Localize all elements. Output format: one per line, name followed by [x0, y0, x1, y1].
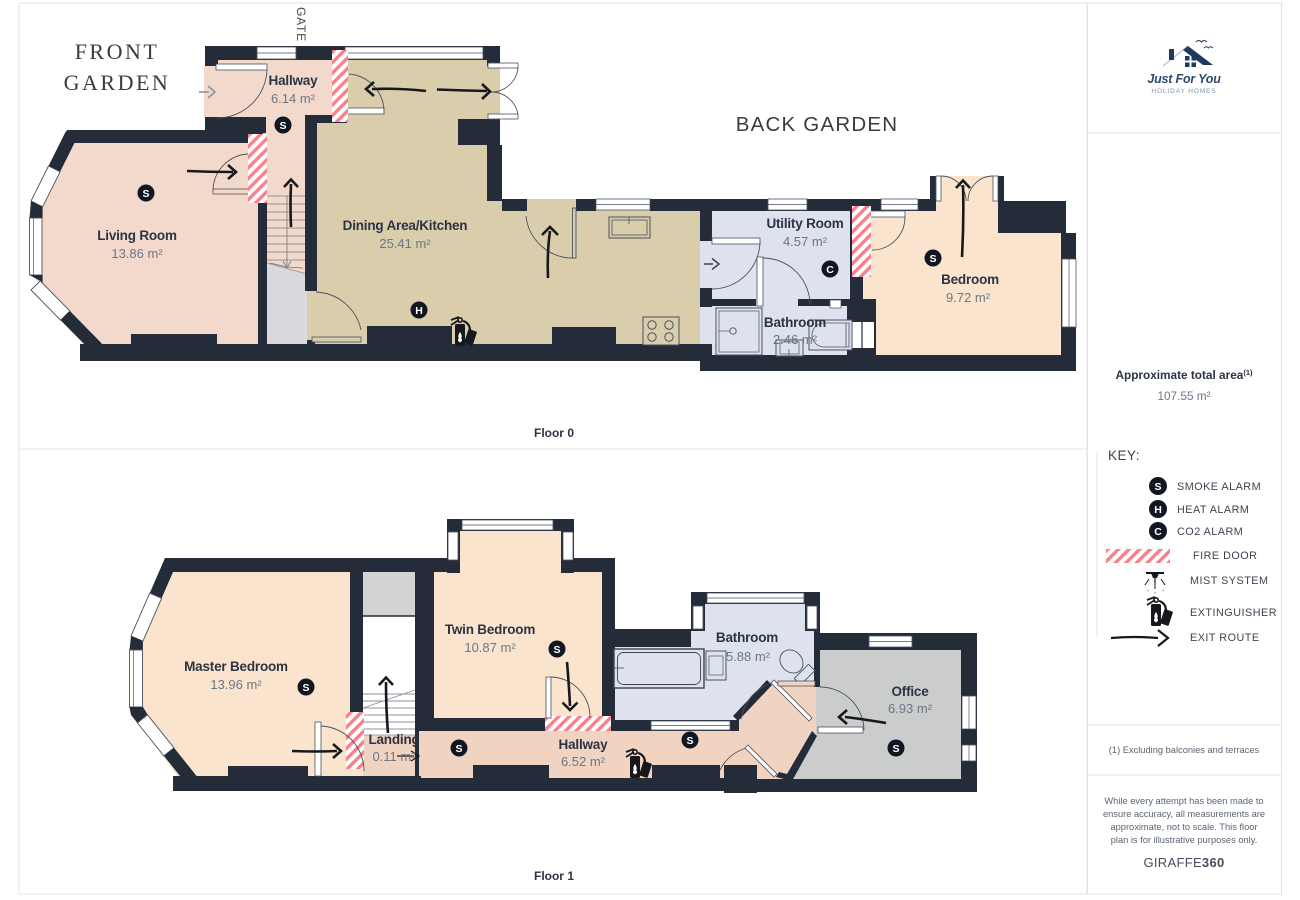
- svg-text:BACK GARDEN: BACK GARDEN: [736, 113, 898, 136]
- svg-text:6.93 m²: 6.93 m²: [888, 701, 933, 716]
- svg-text:S: S: [142, 188, 149, 200]
- svg-text:Office: Office: [891, 684, 929, 699]
- svg-text:H: H: [1154, 504, 1162, 516]
- svg-text:S: S: [929, 253, 936, 265]
- svg-text:EXIT ROUTE: EXIT ROUTE: [1190, 632, 1260, 644]
- svg-text:S: S: [279, 120, 286, 132]
- svg-text:plan is for illustrative purpo: plan is for illustrative purposes only.: [1111, 835, 1258, 845]
- svg-text:Twin Bedroom: Twin Bedroom: [445, 622, 536, 637]
- svg-text:S: S: [686, 735, 693, 747]
- svg-text:Hallway: Hallway: [559, 737, 609, 752]
- svg-text:Hallway: Hallway: [269, 73, 319, 88]
- svg-text:6.52 m²: 6.52 m²: [561, 754, 606, 769]
- svg-text:EXTINGUISHER: EXTINGUISHER: [1190, 607, 1277, 619]
- svg-text:5.88 m²: 5.88 m²: [726, 649, 771, 664]
- svg-text:107.55 m²: 107.55 m²: [1157, 389, 1210, 403]
- svg-text:GATE: GATE: [294, 7, 308, 42]
- svg-text:C: C: [1154, 526, 1162, 538]
- svg-text:13.96 m²: 13.96 m²: [210, 677, 262, 692]
- svg-text:Just For You: Just For You: [1147, 72, 1221, 86]
- svg-text:FIRE DOOR: FIRE DOOR: [1193, 550, 1257, 562]
- svg-text:Living Room: Living Room: [97, 228, 177, 243]
- svg-text:SMOKE ALARM: SMOKE ALARM: [1177, 481, 1261, 493]
- svg-text:CO2 ALARM: CO2 ALARM: [1177, 526, 1243, 538]
- svg-text:13.86 m²: 13.86 m²: [111, 246, 163, 261]
- svg-text:4.57 m²: 4.57 m²: [783, 234, 828, 249]
- svg-text:ensure accuracy, all measureme: ensure accuracy, all measurements are: [1103, 809, 1265, 819]
- svg-text:Approximate total area(1): Approximate total area(1): [1115, 368, 1253, 382]
- svg-text:Utility Room: Utility Room: [766, 216, 843, 231]
- svg-text:(1) Excluding balconies and te: (1) Excluding balconies and terraces: [1109, 745, 1260, 755]
- svg-text:2.46 m²: 2.46 m²: [773, 332, 818, 347]
- svg-text:S: S: [1154, 481, 1161, 493]
- svg-text:S: S: [553, 644, 560, 656]
- svg-text:9.72 m²: 9.72 m²: [946, 290, 991, 305]
- svg-text:Dining Area/Kitchen: Dining Area/Kitchen: [343, 218, 468, 233]
- svg-text:0.11 m²: 0.11 m²: [372, 749, 416, 764]
- svg-text:S: S: [892, 743, 899, 755]
- svg-text:Floor 0: Floor 0: [534, 426, 574, 440]
- svg-text:C: C: [826, 264, 834, 276]
- svg-text:Bedroom: Bedroom: [941, 272, 999, 287]
- svg-text:Master Bedroom: Master Bedroom: [184, 659, 288, 674]
- svg-text:10.87 m²: 10.87 m²: [464, 640, 516, 655]
- svg-text:GIRAFFE360: GIRAFFE360: [1143, 855, 1224, 870]
- svg-text:approximate, not to scale. Thi: approximate, not to scale. This floor: [1110, 822, 1257, 832]
- svg-text:Bathroom: Bathroom: [716, 630, 778, 645]
- svg-text:GARDEN: GARDEN: [64, 70, 171, 95]
- svg-text:Floor 1: Floor 1: [534, 869, 574, 883]
- svg-text:25.41 m²: 25.41 m²: [379, 236, 431, 251]
- svg-text:MIST SYSTEM: MIST SYSTEM: [1190, 575, 1269, 587]
- svg-text:Landing: Landing: [368, 732, 419, 747]
- svg-text:While every attempt has been m: While every attempt has been made to: [1104, 796, 1263, 806]
- svg-text:HEAT ALARM: HEAT ALARM: [1177, 504, 1249, 516]
- svg-text:S: S: [455, 743, 462, 755]
- svg-text:H: H: [415, 305, 423, 317]
- svg-text:6.14 m²: 6.14 m²: [271, 91, 316, 106]
- svg-text:S: S: [302, 682, 309, 694]
- svg-text:Bathroom: Bathroom: [764, 315, 826, 330]
- svg-text:KEY:: KEY:: [1108, 448, 1140, 463]
- svg-text:HOLIDAY HOMES: HOLIDAY HOMES: [1151, 88, 1216, 95]
- svg-text:FRONT: FRONT: [75, 39, 160, 64]
